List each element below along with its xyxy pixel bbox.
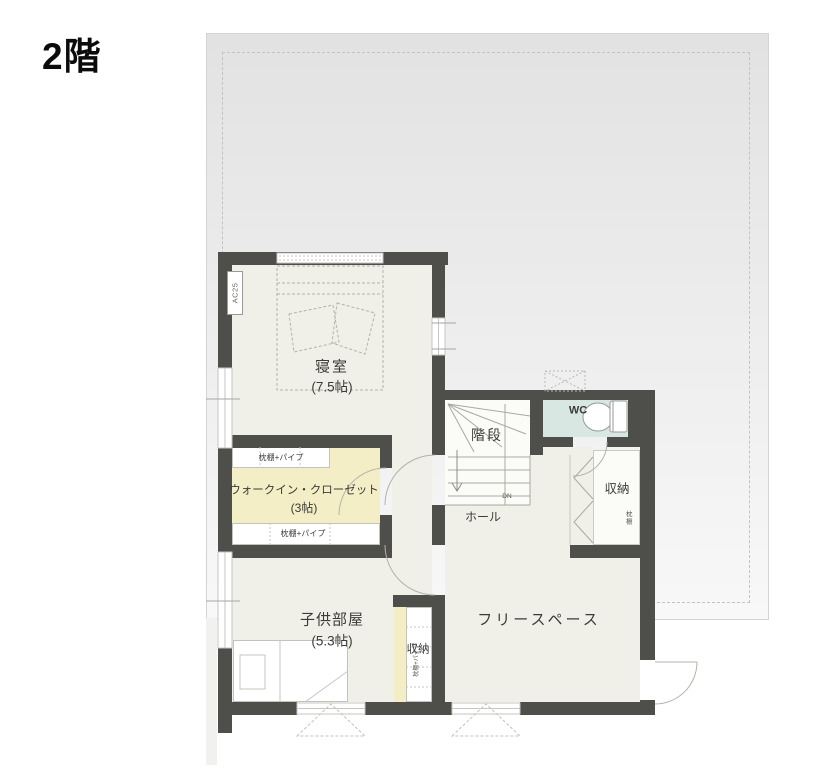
bedroom-size: (7.5帖) [311,380,352,394]
storage-upper-label: 収納 [604,483,629,496]
bedroom-floor [232,265,432,435]
storage-upper-floor [593,450,640,545]
ac-label: AC25 [231,283,239,304]
kids-room-label: 子供部屋 [300,613,364,628]
wic-shelf-top-label: 枕棚+パイプ [259,454,304,462]
wall [432,355,445,402]
wall [218,435,392,448]
kids-room-size: (5.3帖) [311,634,352,648]
wall [218,648,232,733]
bedroom-label: 寝室 [315,360,349,375]
wic-label: ウォークイン・クローゼット [229,485,379,497]
wc-label: WC [569,406,587,417]
wall [432,252,445,318]
wall [432,505,445,545]
wall [218,448,232,552]
wall [432,390,655,400]
stairs-dn-label: DN [502,494,511,501]
wall [380,447,392,468]
kids-storage-label: 収納 [407,644,430,656]
wall [432,402,445,455]
wic-size: (3帖) [291,502,318,514]
stairs-floor [445,400,530,505]
wall [218,545,392,558]
wall [432,595,445,702]
wall [543,437,573,447]
kids-storage-yellow [394,607,406,702]
free-space-label: フリースペース [477,613,600,628]
wall [380,515,392,545]
floor-title: 2階 [42,26,102,80]
wall [640,390,655,660]
wall [628,397,640,437]
wall [365,702,452,715]
hall-label: ホール [465,511,501,523]
stairs-label: 階段 [471,428,503,442]
wall [640,700,655,715]
corridor-floor [392,435,432,558]
wic-shelf-bottom-label: 枕棚+パイプ [281,530,326,538]
floor-plan-canvas: 2階 [0,0,830,772]
hall-ext-floor [530,447,593,545]
wall [218,252,448,265]
wall [530,390,543,455]
roof-left-strip [206,618,217,765]
kids-desk [233,640,348,702]
storage-upper-note: 枕棚 [624,511,631,526]
wall [520,702,655,715]
